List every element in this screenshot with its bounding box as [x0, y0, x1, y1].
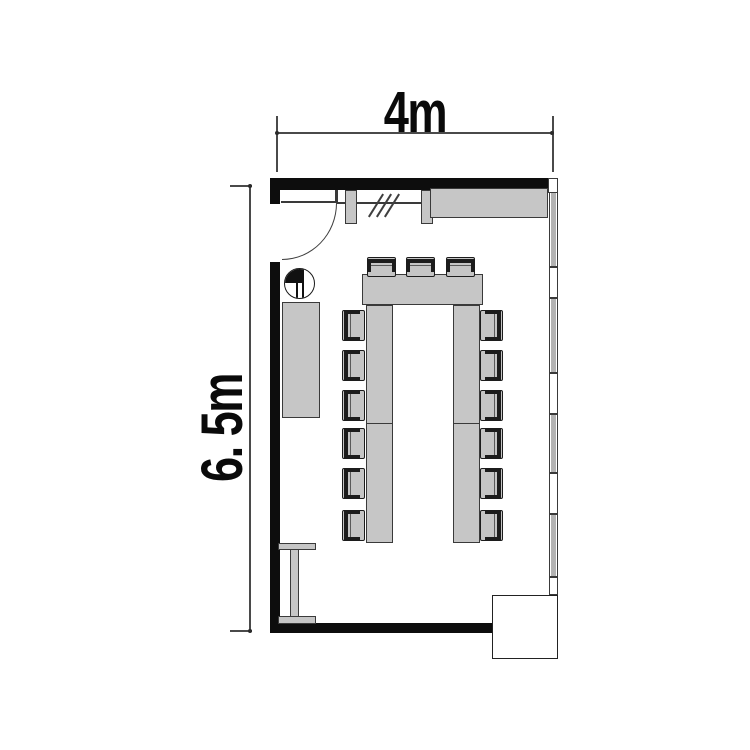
height-dimension-dot-top	[248, 184, 252, 188]
chair	[342, 510, 365, 541]
chair	[342, 468, 365, 499]
window-pane	[549, 514, 558, 577]
chair	[480, 390, 503, 421]
height-dimension-line	[249, 185, 251, 631]
width-dimension-dot-right	[550, 131, 554, 135]
bottom-wall	[270, 623, 492, 633]
height-dimension-dot-bottom	[248, 629, 252, 633]
partition-post-left	[345, 190, 357, 224]
table-seam-right	[454, 423, 479, 424]
chair	[480, 468, 503, 499]
conference-table-right-leg	[453, 305, 480, 543]
corner-box	[492, 595, 558, 659]
conference-table-top	[362, 274, 483, 305]
chair	[480, 510, 503, 541]
glazing-hatch-icon	[384, 194, 400, 218]
top-right-wall-cap	[548, 178, 558, 193]
window-mullion-gap	[549, 473, 558, 514]
chair	[342, 390, 365, 421]
chair	[480, 350, 503, 381]
left-wall	[270, 262, 280, 633]
width-dimension-tick-left	[276, 116, 278, 172]
window-pane	[549, 298, 558, 373]
side-table-bottom-bar	[278, 616, 316, 624]
conference-table-left-leg	[366, 305, 393, 543]
chair	[480, 310, 503, 341]
window-pane	[549, 414, 558, 473]
window-pane	[549, 192, 558, 267]
window-mullion-gap	[549, 577, 558, 595]
width-dimension-dot-left	[275, 131, 279, 135]
height-dimension-label: 6. 5m	[194, 359, 252, 497]
chair	[446, 257, 475, 277]
chair	[406, 257, 435, 277]
width-dimension-tick-right	[552, 116, 554, 172]
table-seam-left	[367, 423, 392, 424]
window-mullion-gap	[549, 373, 558, 414]
window-mullion-gap	[549, 267, 558, 298]
left-cabinet	[282, 302, 320, 418]
chair	[342, 428, 365, 459]
door-swing-arc	[282, 203, 337, 260]
width-dimension-line	[276, 132, 553, 134]
chair	[342, 350, 365, 381]
chair	[480, 428, 503, 459]
floor-plan: 4m 6. 5m	[0, 0, 750, 750]
chair	[342, 310, 365, 341]
chair	[367, 257, 396, 277]
top-cabinet	[430, 188, 548, 218]
planter-icon	[284, 268, 315, 299]
side-table-stem	[290, 549, 299, 617]
left-wall-top-stub	[270, 178, 280, 204]
